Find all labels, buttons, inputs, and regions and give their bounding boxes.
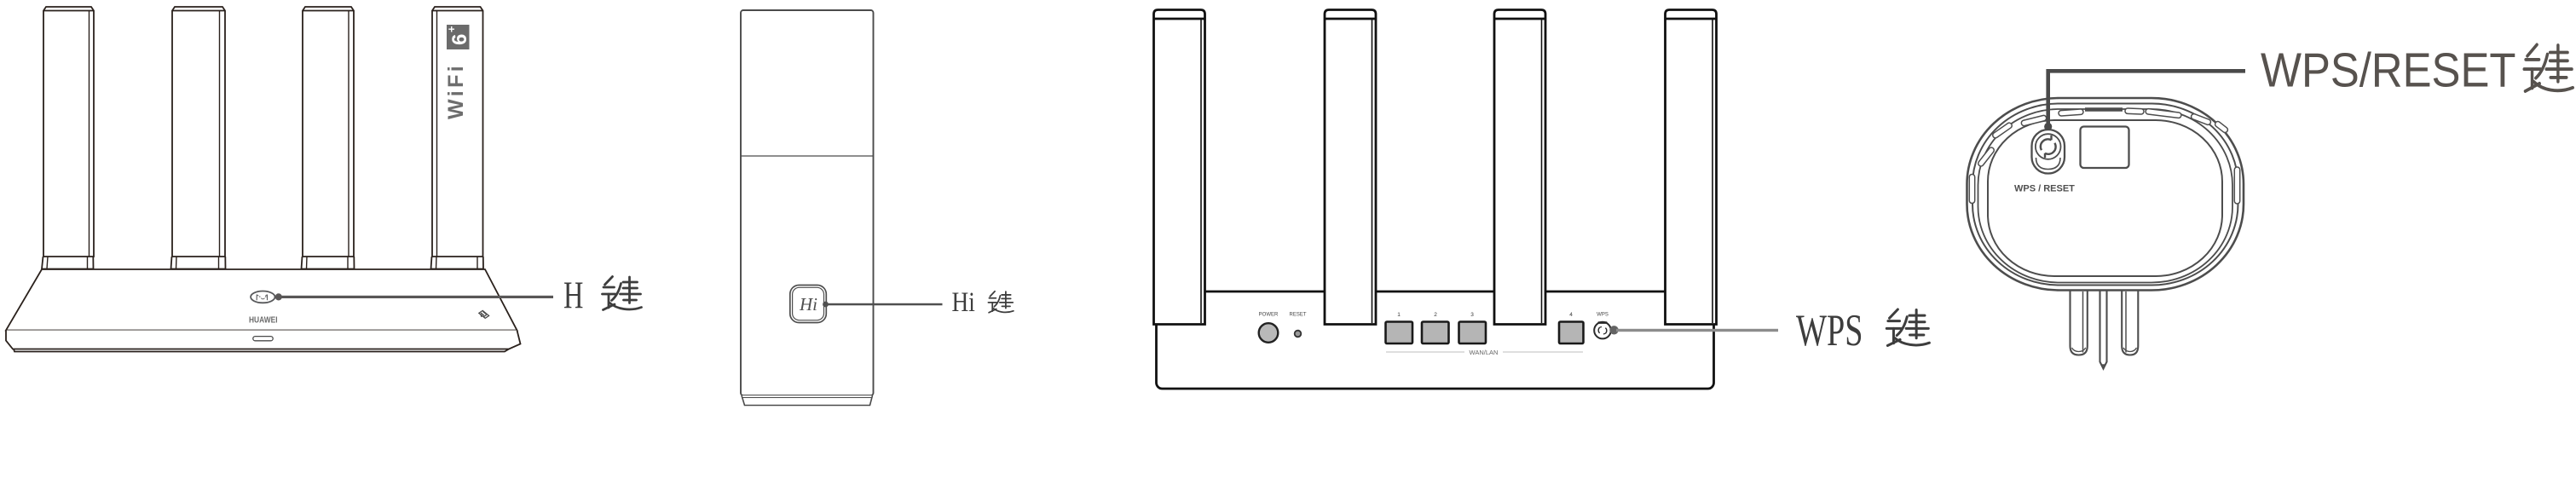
- svg-text:+: +: [445, 26, 458, 32]
- svg-text:WPS / RESET: WPS / RESET: [2014, 184, 2075, 194]
- svg-text:3: 3: [1470, 312, 1474, 318]
- svg-text:WPS/RESET: WPS/RESET: [2261, 43, 2515, 97]
- svg-text:Hi: Hi: [952, 287, 975, 318]
- svg-text:1: 1: [1397, 312, 1401, 318]
- svg-text:HUAWEI: HUAWEI: [249, 315, 278, 326]
- svg-text:Hi: Hi: [799, 294, 817, 315]
- svg-text:WPS: WPS: [1597, 313, 1609, 318]
- svg-text:WiFi: WiFi: [444, 63, 468, 119]
- svg-text:6: 6: [448, 34, 471, 45]
- svg-text:2: 2: [1434, 312, 1437, 318]
- svg-text:POWER: POWER: [1259, 313, 1279, 318]
- svg-text:WPS: WPS: [1796, 305, 1863, 355]
- svg-text:H: H: [563, 274, 583, 316]
- svg-text:4: 4: [1569, 312, 1573, 318]
- svg-text:RESET: RESET: [1289, 313, 1306, 318]
- svg-text:WAN/LAN: WAN/LAN: [1470, 349, 1499, 356]
